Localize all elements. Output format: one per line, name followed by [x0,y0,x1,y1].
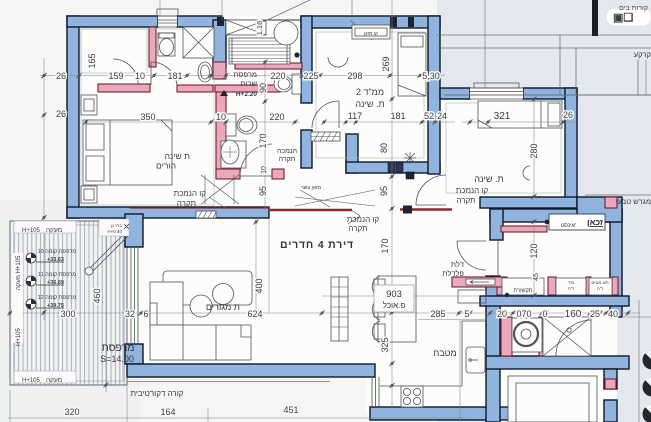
svg-text:10: 10 [216,112,226,122]
svg-text:קורות בים: קורות בים [619,5,648,12]
svg-text:מרפסת קומה 10: מרפסת קומה 10 [38,249,77,255]
svg-text:H+105: H+105 [22,378,41,384]
svg-text:0: 0 [542,309,547,319]
svg-text:40: 40 [608,309,618,319]
svg-text:25: 25 [590,309,600,319]
svg-text:ממ"ד 2: ממ"ד 2 [356,87,384,97]
svg-text:תא מנוים: תא מנוים [591,280,608,285]
svg-text:ד'ח: ד'ח [597,286,604,291]
svg-text:▣❏: ▣❏ [613,12,633,24]
svg-text:070: 070 [516,309,531,319]
svg-text:קורה דקורטיבית: קורה דקורטיבית [131,389,184,398]
svg-text:10: 10 [135,71,145,81]
svg-text:סיר: סיר [568,280,575,285]
svg-text:ת. שינה: ת. שינה [355,99,384,109]
svg-text:דירת 4 חדרים: דירת 4 חדרים [280,239,354,251]
svg-text:תקרה: תקרה [177,199,196,208]
svg-text:תקרה: תקרה [279,156,296,163]
svg-text:מעקה H+105: מעקה H+105 [16,255,22,290]
svg-text:הורים: הורים [156,161,176,171]
svg-text:מזאן עשר: מזאן עשר [301,185,322,191]
svg-text:298: 298 [347,71,362,81]
svg-text:321: 321 [494,111,511,122]
svg-text:קו הנמכת: קו הנמכת [456,186,489,195]
svg-text:תקרה: תקרה [456,196,475,205]
svg-text:מרפסת: מרפסת [102,342,135,354]
svg-text:זכאן: זכאן [587,217,603,227]
svg-text:220: 220 [269,112,284,122]
svg-text:285: 285 [430,309,445,319]
svg-text:165: 165 [87,53,97,68]
svg-text:מרפסת קומה 12: מרפסת קומה 12 [38,295,77,301]
svg-text:26: 26 [56,109,66,119]
svg-text:אינסט': אינסט' [561,223,576,229]
svg-text:מטבח: מטבח [433,348,456,358]
svg-text:451: 451 [283,405,298,415]
svg-text:שרות: שרות [240,79,257,88]
svg-text:קרקע: קרקע [634,50,651,59]
svg-text:10: 10 [261,166,268,174]
svg-text:דלת: דלת [451,260,464,269]
svg-text:24: 24 [437,111,447,121]
svg-text:181: 181 [167,71,182,81]
svg-text:6: 6 [143,309,148,319]
svg-text:1.16: 1.16 [255,21,264,36]
svg-text:פלדלת: פלדלת [442,269,464,278]
svg-text:20: 20 [497,309,507,319]
svg-text:מעקה: מעקה [46,227,62,234]
svg-text:5: 5 [464,309,469,319]
svg-text:מגרש טבעי: מגרש טבעי [616,197,651,206]
svg-text:95: 95 [379,186,389,196]
svg-text:220: 220 [270,71,285,81]
svg-text:קו הנמכת: קו הנמכת [347,215,380,224]
svg-text:269: 269 [381,56,391,71]
svg-text:350: 350 [140,112,155,122]
svg-text:מרפסת: מרפסת [233,70,257,79]
svg-text:170: 170 [258,133,268,148]
svg-text:45: 45 [533,273,540,281]
svg-text:170: 170 [380,238,390,253]
svg-text:ברז גן: ברז גן [111,223,122,228]
svg-text:90: 90 [258,83,268,93]
svg-text:5,30: 5,30 [422,71,440,81]
svg-text:32: 32 [125,309,135,319]
svg-text:181: 181 [390,111,405,121]
svg-text:פ.אוכל: פ.אוכל [383,301,406,310]
svg-text:הנמכה: הנמכה [277,148,297,155]
svg-text:120: 120 [529,243,539,258]
svg-text:H+0.40: H+0.40 [107,229,122,234]
svg-text:ת שינה: ת שינה [165,151,190,161]
svg-text:160: 160 [565,309,582,320]
svg-text:300: 300 [60,309,75,319]
svg-text:320: 320 [64,407,79,417]
svg-text:903: 903 [386,289,402,300]
svg-text:280: 280 [529,143,539,158]
svg-text:S=14.00: S=14.00 [100,354,134,364]
svg-text:52: 52 [424,111,434,121]
svg-text:164: 164 [160,407,175,417]
svg-text:80: 80 [379,143,389,153]
svg-text:225: 225 [303,71,318,81]
svg-text:H+105: H+105 [22,228,41,234]
svg-text:ד'ח: ד'ח [568,286,575,291]
svg-text:ת. שינה: ת. שינה [474,174,503,184]
svg-text:159: 159 [108,71,123,81]
svg-text:400: 400 [254,278,264,293]
svg-text:624: 624 [247,309,262,319]
svg-text:תקרה: תקרה [348,224,367,233]
svg-text:26: 26 [56,71,66,81]
svg-text:מרפסת קומה 11: מרפסת קומה 11 [38,272,77,278]
svg-text:קו הנמכת: קו הנמכת [174,189,207,198]
svg-text:26: 26 [563,110,573,120]
svg-text:117: 117 [348,111,362,121]
svg-text:מעקה: מעקה [46,377,62,384]
svg-text:ת מגורים: ת מגורים [206,302,240,312]
svg-text:תקשורת: תקשורת [514,288,533,294]
svg-text:95: 95 [258,186,268,196]
svg-text:H+2.20: H+2.20 [236,91,258,98]
svg-text:460: 460 [92,288,102,303]
svg-text:325: 325 [380,337,390,352]
svg-text:קו מזגן: קו מזגן [364,31,378,37]
svg-text:H+105: H+105 [16,327,22,346]
